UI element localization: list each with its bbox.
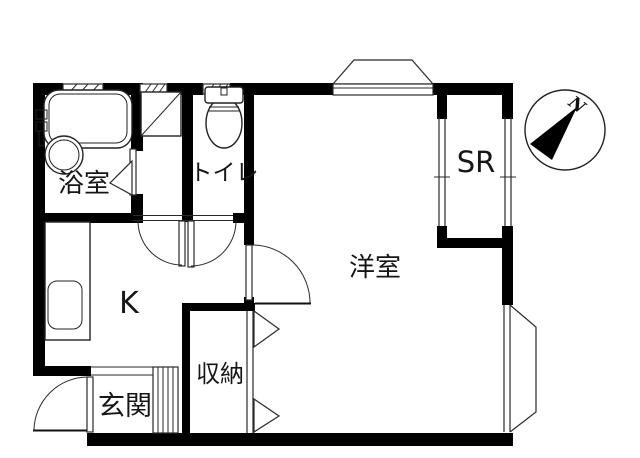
closet-left-wall (182, 303, 190, 434)
right-wall-mid (502, 226, 513, 305)
bathroom-folding-door (110, 149, 136, 195)
entrance-door (33, 377, 93, 432)
bottom-wall (87, 433, 513, 446)
bay-window-right (504, 305, 536, 432)
kitchen-bottom-wall (33, 366, 91, 376)
entrance-step-line (91, 367, 153, 375)
compass: N (525, 90, 605, 170)
closet-label: 収納 (196, 360, 244, 388)
entrance-label: 玄関 (98, 391, 152, 422)
shoe-cabinet (153, 367, 178, 433)
kitchen-label: K (119, 286, 140, 321)
washroom-door (138, 221, 185, 266)
toilet-bowl (205, 87, 243, 148)
right-wall-top (502, 95, 513, 119)
toilet-door (188, 221, 236, 267)
floor-plan-svg: N 浴室 トイレ K 洋室 SR 収納 玄関 (0, 0, 640, 458)
washroom-toilet-divider-wall (182, 83, 193, 222)
closet-top-wall (182, 303, 255, 311)
washing-machine-pan (141, 92, 181, 136)
service-room-left-cap-bottom (437, 226, 447, 238)
bathroom-right-wall-stub (131, 194, 143, 223)
service-room-sliding-door-left (434, 117, 450, 226)
bay-window-top (333, 60, 433, 95)
service-room-bottom-wall (437, 238, 513, 248)
floor-plan-canvas: N 浴室 トイレ K 洋室 SR 収納 玄関 (0, 0, 640, 458)
western-room-label: 洋室 (349, 253, 401, 283)
toilet-doorway-stub (233, 213, 245, 223)
bathroom-label: 浴室 (58, 169, 110, 199)
service-room-left-cap-top (437, 95, 447, 119)
kitchen-counter (45, 222, 90, 340)
closet-folding-doors (247, 311, 279, 433)
western-room-door (246, 245, 311, 304)
toilet-label: トイレ (190, 160, 259, 186)
service-room-label: SR (457, 145, 496, 179)
top-wall-seg-e (433, 83, 513, 95)
left-wall (33, 83, 45, 373)
service-room-window-right (500, 117, 516, 226)
